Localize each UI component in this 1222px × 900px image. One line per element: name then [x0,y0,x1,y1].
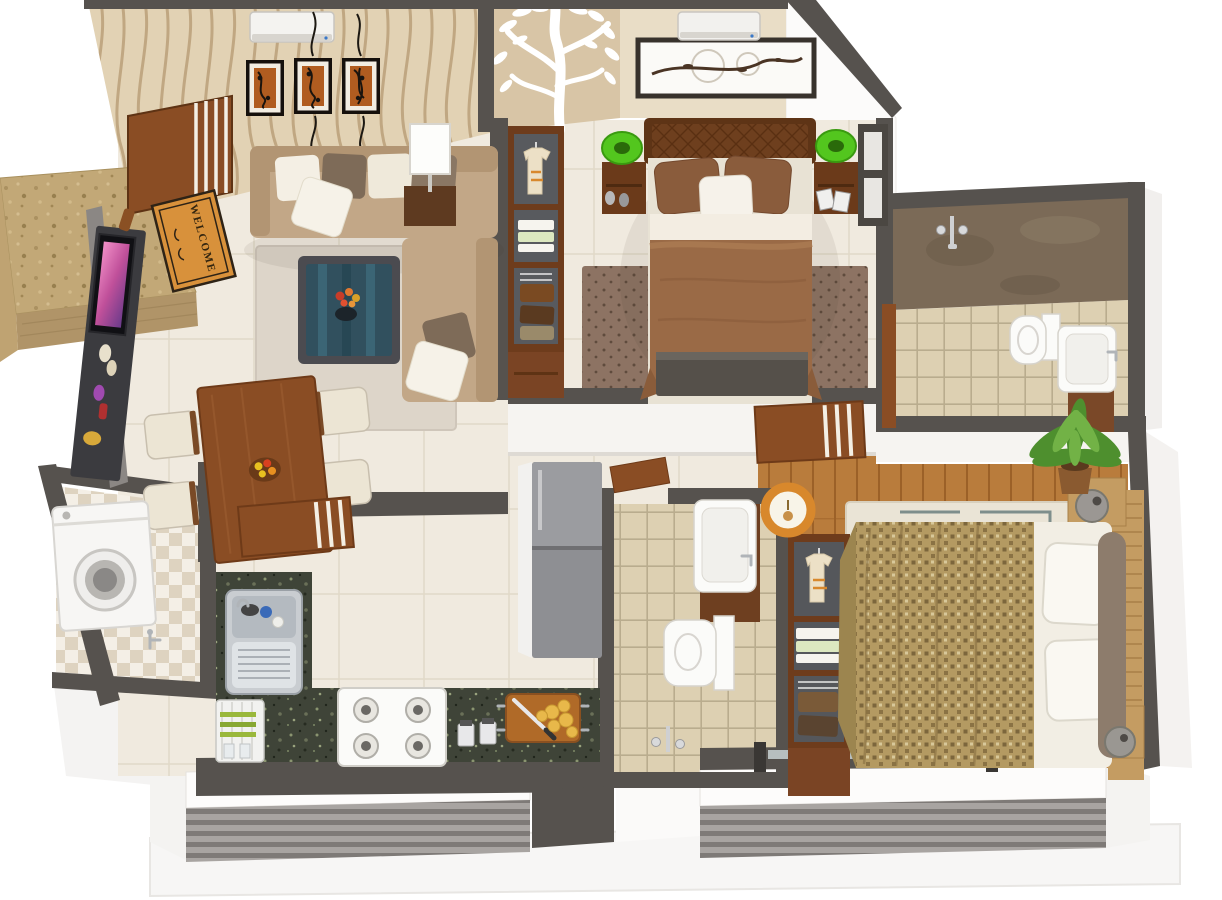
refrigerator [518,462,602,658]
air-conditioner-bedroom [678,12,760,40]
floor-plan-render: WELCOME [0,0,1222,900]
open-striped-door-master [755,401,866,463]
photo-frame [816,189,835,211]
louvered-railing-left [186,800,530,862]
tree-decal-wall [491,2,622,132]
dining-chair [143,481,199,530]
ensuite-marble-wall [890,196,1128,310]
folded-towels [796,628,840,663]
balcony-divider-pillar [532,786,614,848]
dining-chair [144,411,200,460]
double-steel-sink [226,590,302,694]
double-bed-master [640,118,822,404]
dish-rack [216,700,264,762]
art-frame [342,58,380,114]
louvered-railing-right [700,798,1106,858]
top-wall-cap [84,0,788,9]
floor-plan-svg: WELCOME [0,0,1222,900]
flower-vase [335,307,357,321]
glass-coffee-table [298,256,400,364]
blue-cup [260,606,272,618]
drum-lamp [1076,490,1108,522]
ring-pendant-lamp [765,487,811,533]
vase [605,191,615,205]
art-frame [246,60,284,116]
white-table-lamp [410,124,450,174]
open-striped-door-kitchen [238,497,354,557]
balcony-middle-wall [616,782,700,842]
taupe-bolster [1098,532,1126,758]
toilet [1010,314,1060,364]
photo-frame [832,191,850,212]
branch-artwork-frame [638,40,814,96]
nightstand-right [814,130,858,214]
folded-towels [518,220,554,252]
vanity-sink [694,500,760,622]
utility-room [52,501,160,648]
ball-lamp [1105,727,1135,757]
gas-hob [338,688,446,766]
white-cup [273,617,284,628]
living-tree-divider-post [478,2,494,132]
cutting-board-with-food [498,694,588,742]
double-bed-second [838,478,1144,780]
patterned-duvet [856,522,1034,768]
washing-machine [52,501,156,631]
ensuite-door [882,304,896,428]
bedroom-window-blinds [858,124,888,226]
side-table-with-lamp [404,124,456,226]
toilet [664,616,734,690]
art-frame [294,58,332,114]
dining-chair [314,387,370,436]
vase [619,193,629,207]
nightstand-left [602,132,646,214]
open-wardrobe-master [508,126,564,398]
air-conditioner-living [250,12,334,42]
pot [241,604,259,616]
